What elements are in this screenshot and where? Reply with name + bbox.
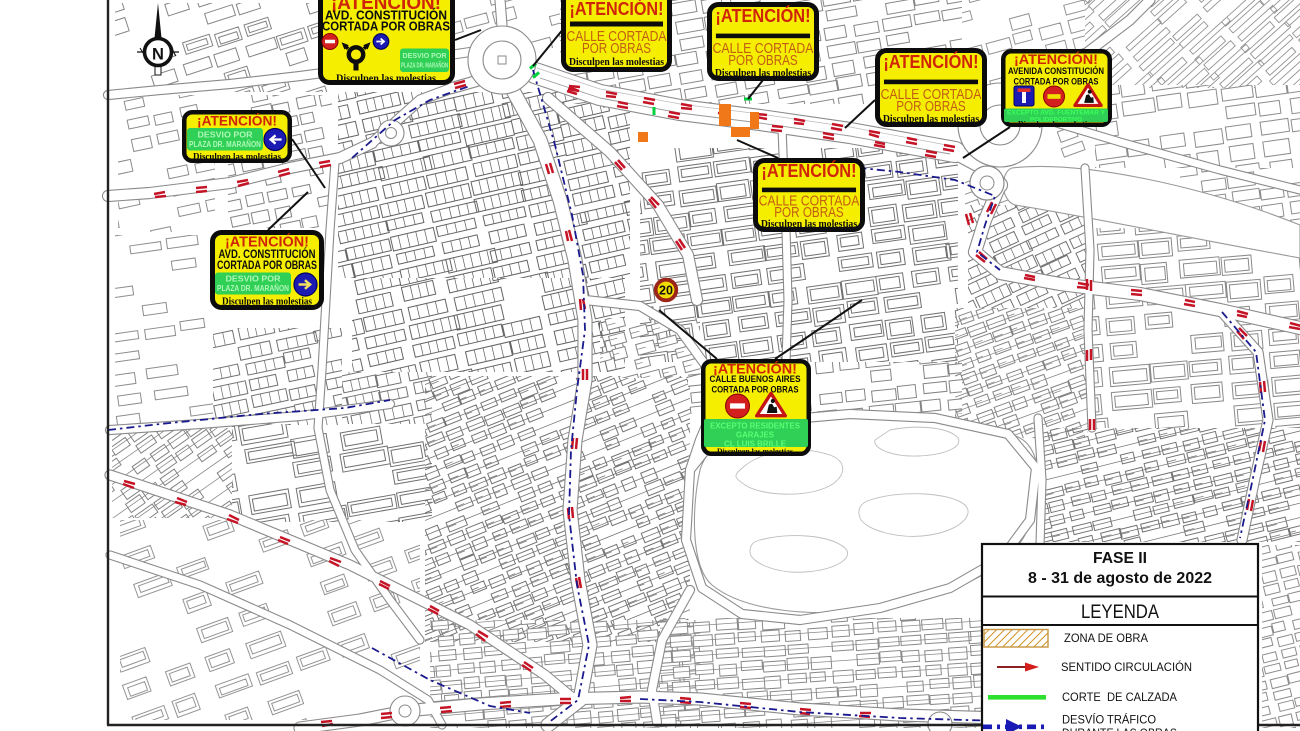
svg-text:DESVÍO TRÁFICO: DESVÍO TRÁFICO bbox=[1062, 714, 1156, 727]
svg-text:AVENIDA CONSTITUCIÓN: AVENIDA CONSTITUCIÓN bbox=[1008, 65, 1104, 76]
svg-text:Disculpen las molestias: Disculpen las molestias bbox=[717, 447, 793, 456]
svg-text:Disculpen las molestias: Disculpen las molestias bbox=[761, 218, 858, 230]
svg-text:Disculpen las molestias: Disculpen las molestias bbox=[222, 297, 312, 308]
svg-text:8 - 31 de agosto de 2022: 8 - 31 de agosto de 2022 bbox=[1028, 570, 1212, 587]
svg-text:EXCEPTO AVD. FUENTEMAR Y: EXCEPTO AVD. FUENTEMAR Y bbox=[1007, 110, 1106, 117]
svg-text:CORTADA POR OBRAS: CORTADA POR OBRAS bbox=[217, 258, 317, 272]
svg-text:CORTADA POR OBRAS: CORTADA POR OBRAS bbox=[1014, 77, 1099, 87]
svg-text:CORTADA POR OBRAS: CORTADA POR OBRAS bbox=[322, 19, 450, 34]
svg-text:SENTIDO CIRCULACIÓN: SENTIDO CIRCULACIÓN bbox=[1061, 661, 1192, 674]
svg-text:Disculpen las molestias: Disculpen las molestias bbox=[1018, 119, 1094, 128]
svg-text:¡ATENCIÓN!: ¡ATENCIÓN! bbox=[197, 112, 277, 129]
svg-text:¡ATENCIÓN!: ¡ATENCIÓN! bbox=[761, 160, 856, 181]
svg-text:PLAZA DR. MARAÑON: PLAZA DR. MARAÑON bbox=[189, 139, 261, 149]
svg-text:PLAZA DR. MARAÑON: PLAZA DR. MARAÑON bbox=[401, 61, 448, 70]
svg-text:CORTE DE CALZADA: CORTE DE CALZADA bbox=[1062, 692, 1177, 704]
svg-text:Disculpen las molestias: Disculpen las molestias bbox=[569, 56, 665, 68]
svg-text:Disculpen las molestias: Disculpen las molestias bbox=[336, 73, 437, 85]
svg-text:Disculpen las molestias: Disculpen las molestias bbox=[715, 67, 812, 79]
svg-text:¡ATENCIÓN!: ¡ATENCIÓN! bbox=[1014, 52, 1098, 67]
svg-text:DESVIO POR: DESVIO POR bbox=[198, 131, 253, 140]
svg-text:CORTADA POR OBRAS: CORTADA POR OBRAS bbox=[712, 385, 799, 395]
svg-text:Disculpen las molestias: Disculpen las molestias bbox=[883, 113, 980, 125]
svg-text:FASE II: FASE II bbox=[1093, 550, 1147, 567]
svg-text:CALLE BUENOS AIRES: CALLE BUENOS AIRES bbox=[710, 374, 801, 384]
svg-text:ZONA DE OBRA: ZONA DE OBRA bbox=[1064, 633, 1148, 645]
svg-text:DESVIO POR: DESVIO POR bbox=[403, 51, 448, 60]
svg-text:POR OBRAS: POR OBRAS bbox=[582, 41, 651, 57]
svg-text:PLAZA DR. MARAÑON: PLAZA DR. MARAÑON bbox=[217, 283, 289, 293]
svg-text:¡ATENCIÓN!: ¡ATENCIÓN! bbox=[715, 5, 810, 26]
svg-text:DESVIO POR: DESVIO POR bbox=[226, 275, 281, 284]
svg-text:Disculpen las molestias: Disculpen las molestias bbox=[193, 153, 281, 163]
svg-text:¡ATENCIÓN!: ¡ATENCIÓN! bbox=[883, 51, 978, 72]
svg-text:¡ATENCIÓN!: ¡ATENCIÓN! bbox=[570, 0, 664, 19]
svg-text:LEYENDA: LEYENDA bbox=[1081, 602, 1159, 623]
